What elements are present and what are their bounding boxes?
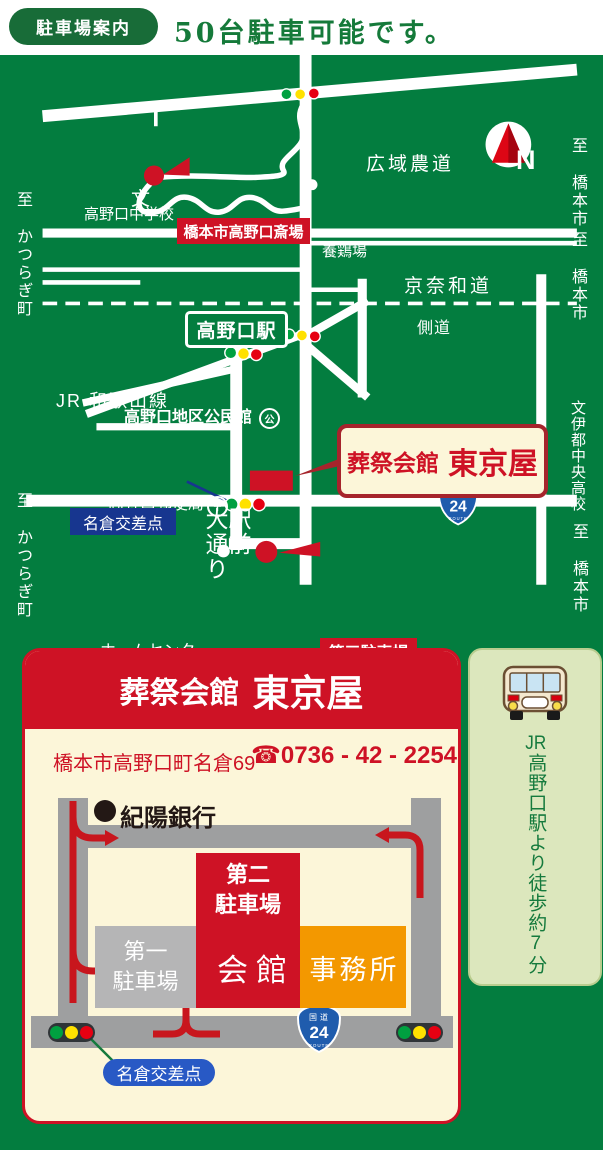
compass-n-label: N bbox=[516, 147, 536, 174]
traffic-light-kominkan bbox=[225, 347, 262, 361]
area-map: 国道 24 ROUTE bbox=[0, 55, 603, 635]
daisan-dot bbox=[255, 541, 277, 563]
parking-2-block: 第二駐車場 bbox=[196, 853, 300, 926]
label-ito-high-school: 文伊都中央高校 bbox=[570, 400, 585, 512]
detail-card: 国道 24 ROUTE 葬祭会館 東京屋 橋本市高野口町名倉69 ☎0736 -… bbox=[22, 648, 461, 1124]
green-light bbox=[398, 1026, 411, 1039]
bank-dot bbox=[94, 800, 116, 822]
yokeijo-dot bbox=[307, 179, 318, 190]
label-ekimae-col1: 駅前 bbox=[225, 507, 251, 557]
saijo-pointer bbox=[163, 157, 189, 175]
office-block: 事務所 bbox=[300, 926, 406, 1008]
hall-block: 会館 bbox=[196, 926, 308, 1008]
route-badge-kanji: 国道 bbox=[309, 1012, 331, 1022]
callout-shop: 東京屋 bbox=[448, 439, 538, 483]
callout-name: 葬祭会館 bbox=[347, 444, 439, 478]
label-kiyo-bank: 紀陽銀行 bbox=[120, 798, 216, 833]
parking-info-badge: 駐車場案内 bbox=[9, 8, 158, 45]
route-badge-word: ROUTE bbox=[449, 516, 468, 521]
green-light bbox=[50, 1026, 63, 1039]
card-phone: ☎0736 - 42 - 2254 bbox=[251, 741, 457, 770]
label-nagura-crossing-map: 名倉交差点 bbox=[70, 508, 176, 535]
label-side-road: 側道 bbox=[417, 321, 451, 337]
red-light bbox=[80, 1026, 93, 1039]
route-badge-number: 24 bbox=[310, 1023, 329, 1042]
access-sidebar: JR高野口駅より徒歩約7分 bbox=[468, 648, 602, 986]
label-junior-high: 高野口中学校 bbox=[84, 207, 174, 222]
tokyoya-callout: 葬祭会館 東京屋 bbox=[337, 424, 548, 498]
parking-2-line2: 駐車場 bbox=[215, 890, 281, 920]
traffic-light-card-left bbox=[48, 1023, 95, 1042]
traffic-light-station-east bbox=[284, 329, 321, 342]
label-wide-farm-road: 広域農道 bbox=[366, 155, 454, 174]
yellow-light bbox=[65, 1026, 78, 1039]
label-jr-line: JR 和歌山線 bbox=[56, 392, 169, 410]
walk-time-rest: 高野口駅より徒歩約7分 bbox=[525, 753, 546, 975]
page: 駐車場案内 50台駐車可能です。 bbox=[0, 0, 603, 1150]
parking-1-block: 第一駐車場 bbox=[95, 926, 196, 1008]
card-address: 橋本市高野口町名倉69 bbox=[53, 747, 255, 776]
label-to-hashimoto-3: 至 橋本市 bbox=[570, 523, 586, 614]
route-badge-word: ROUTE bbox=[309, 1043, 330, 1048]
red-light bbox=[428, 1026, 441, 1039]
label-to-hashimoto-2: 至 橋本市 bbox=[569, 231, 585, 322]
saijo-dot bbox=[144, 166, 164, 186]
card-title-name: 葬祭会館 bbox=[120, 668, 240, 712]
card-header: 葬祭会館 東京屋 bbox=[25, 651, 458, 729]
label-nagura-crossing-card: 名倉交差点 bbox=[103, 1059, 215, 1086]
label-to-hashimoto-1: 至 橋本市 bbox=[569, 137, 585, 228]
parking-2-line1: 第二 bbox=[215, 860, 281, 890]
walk-time-text: JR高野口駅より徒歩約7分 bbox=[525, 734, 546, 975]
traffic-light-farm-road bbox=[281, 88, 319, 100]
tokyoya-building bbox=[250, 471, 293, 491]
label-saijo: 橋本市高野口斎場 bbox=[177, 218, 310, 244]
label-keinawa: 京奈和道 bbox=[404, 277, 492, 296]
label-ekimae-col2: 大通り bbox=[202, 507, 228, 582]
label-yokeijo: 養鶏場 bbox=[322, 244, 367, 259]
page-title: 50台駐車可能です。 bbox=[174, 11, 455, 50]
label-kominkan: 高野口地区公民館 bbox=[124, 410, 252, 426]
parking-1-line1: 第一 bbox=[112, 937, 178, 967]
kominkan-icon: 公 bbox=[259, 408, 280, 429]
station-koyaguchi: 高野口駅 bbox=[185, 311, 288, 348]
yellow-light bbox=[413, 1026, 426, 1039]
label-to-katsuragi-2: 至 かつらぎ町 bbox=[14, 492, 30, 619]
parking-1-line2: 駐車場 bbox=[112, 967, 178, 997]
label-to-katsuragi-1: 至 かつらぎ町 bbox=[14, 191, 30, 318]
walk-time-jr: JR bbox=[525, 734, 546, 753]
card-title-shop: 東京屋 bbox=[253, 663, 364, 717]
bus-icon bbox=[499, 664, 571, 722]
label-ekimae-street: 駅前大通り bbox=[203, 507, 249, 582]
route-badge-number: 24 bbox=[450, 499, 468, 516]
traffic-light-card-right bbox=[396, 1023, 443, 1042]
